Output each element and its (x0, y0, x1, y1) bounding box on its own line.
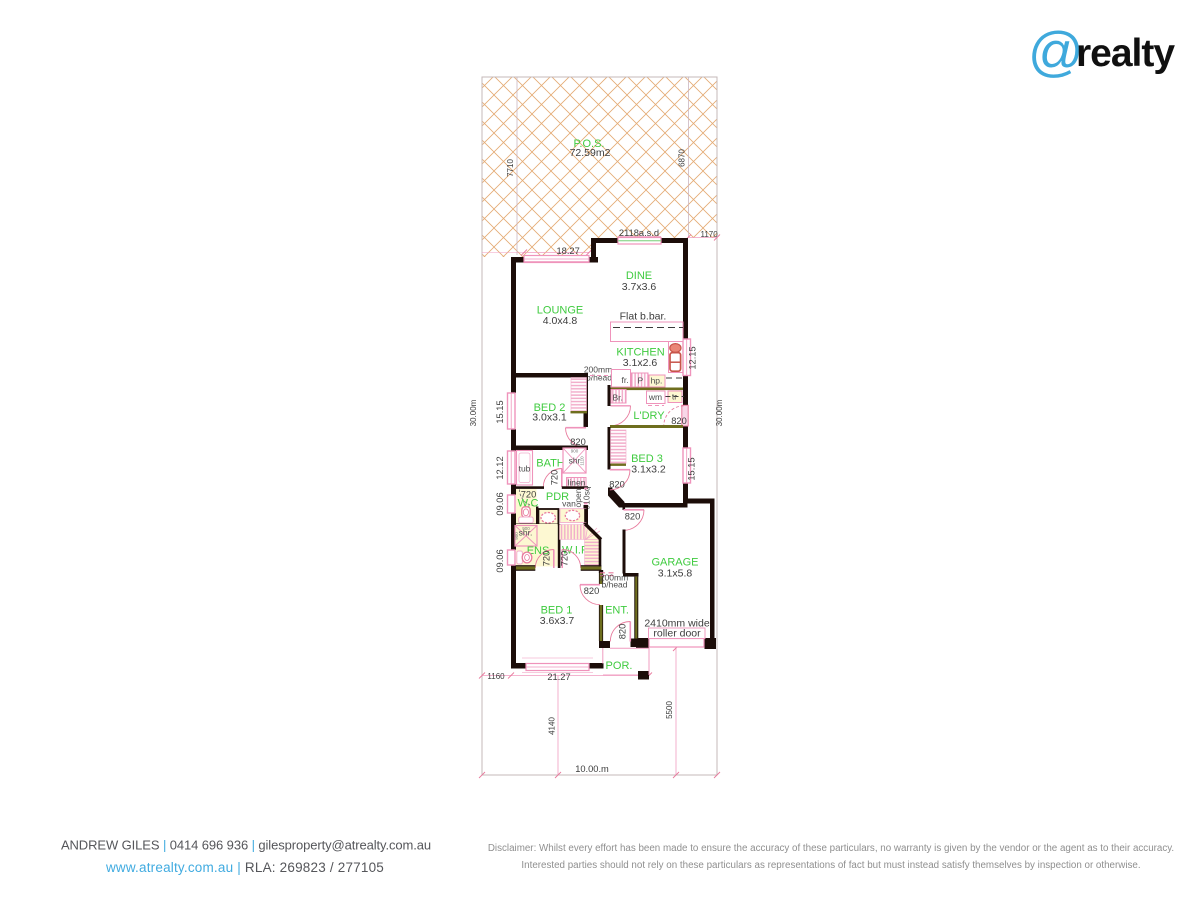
svg-text:30.00m: 30.00m (715, 399, 724, 426)
svg-text:wm: wm (648, 392, 662, 402)
svg-text:15.15: 15.15 (495, 400, 505, 423)
svg-text:820: 820 (625, 512, 641, 522)
svg-text:fr.: fr. (622, 375, 629, 385)
svg-text:1170: 1170 (701, 230, 719, 239)
svg-text:linen: linen (568, 478, 586, 488)
svg-text:10.00.m: 10.00.m (575, 764, 609, 774)
svg-text:P: P (638, 376, 644, 386)
svg-text:Flat b.bar.: Flat b.bar. (620, 311, 667, 323)
svg-text:shr.: shr. (519, 528, 533, 538)
svg-text:POR.: POR. (606, 660, 633, 672)
svg-text:Disclaimer: Whilst every effor: Disclaimer: Whilst every effort has been… (488, 843, 1174, 854)
svg-text:shr: shr (569, 456, 581, 466)
svg-text:www.atrealty.com.au | RLA: 2: www.atrealty.com.au | RLA: 269823 / 2771… (105, 860, 384, 875)
svg-text:3.1x2.6: 3.1x2.6 (623, 357, 658, 369)
svg-text:09.06: 09.06 (495, 492, 505, 515)
svg-text:tub: tub (519, 464, 531, 474)
svg-text:15.15: 15.15 (687, 457, 697, 480)
svg-text:720: 720 (550, 470, 560, 486)
svg-text:820: 820 (671, 416, 687, 426)
svg-text:4140: 4140 (548, 717, 557, 735)
svg-text:30.00m: 30.00m (469, 399, 478, 426)
svg-text:7710: 7710 (506, 159, 515, 177)
svg-text:4.0x4.8: 4.0x4.8 (543, 315, 578, 327)
svg-text:6870: 6870 (678, 149, 687, 167)
svg-text:5500: 5500 (665, 701, 674, 719)
svg-text:72.59m2: 72.59m2 (570, 147, 611, 159)
svg-text:18.27: 18.27 (557, 246, 580, 256)
svg-text:Interested parties should not: Interested parties should not rely on th… (521, 860, 1140, 871)
svg-text:12.12: 12.12 (495, 456, 505, 479)
svg-text:@: @ (1027, 20, 1083, 82)
svg-text:realty: realty (1076, 32, 1175, 75)
svg-text:820: 820 (618, 624, 628, 640)
svg-text:3.7x3.6: 3.7x3.6 (622, 281, 657, 293)
svg-text:L'DRY: L'DRY (633, 410, 665, 422)
svg-text:2410mm wide: 2410mm wide (644, 618, 710, 630)
svg-text:900: 900 (571, 449, 579, 454)
svg-text:ENT.: ENT. (605, 605, 629, 617)
svg-text:2118a.s.d: 2118a.s.d (619, 228, 659, 238)
svg-text:1160: 1160 (487, 672, 505, 681)
svg-text:hp.: hp. (651, 376, 663, 386)
svg-text:09.06: 09.06 (495, 549, 505, 572)
svg-text:720: 720 (560, 551, 570, 567)
svg-text:3.1x5.8: 3.1x5.8 (658, 568, 693, 580)
svg-text:tr: tr (672, 392, 677, 402)
svg-text:b/head: b/head (586, 373, 612, 383)
svg-text:720: 720 (542, 551, 552, 567)
svg-text:3.0x3.1: 3.0x3.1 (532, 412, 567, 424)
svg-text:b/head: b/head (602, 580, 628, 590)
svg-text:ANDREW GILES | 0414 696 936: ANDREW GILES | 0414 696 936 | gilesprope… (61, 838, 431, 853)
svg-text:21.27: 21.27 (547, 672, 570, 682)
svg-text:820: 820 (609, 480, 625, 490)
svg-text:820: 820 (584, 586, 600, 596)
svg-text:BATH: BATH (536, 458, 565, 470)
svg-text:3.1x3.2: 3.1x3.2 (631, 464, 666, 476)
svg-text:3.6x3.7: 3.6x3.7 (540, 615, 575, 627)
svg-text:12.15: 12.15 (688, 346, 698, 369)
svg-text:Br.: Br. (613, 393, 623, 403)
